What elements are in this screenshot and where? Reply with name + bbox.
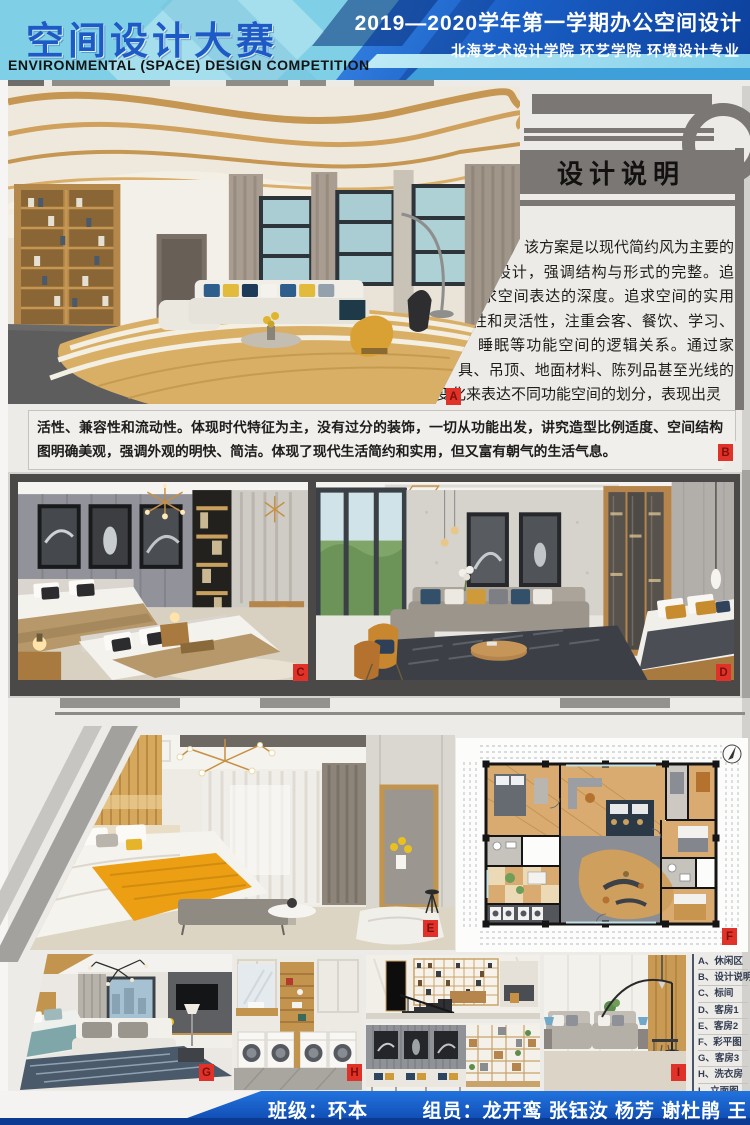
design-note-title-box: 设计说明: [506, 150, 736, 194]
deco-bar: [524, 136, 714, 141]
term-line: 2019—2020学年第一学期办公空间设计: [355, 7, 742, 37]
legend-item: G、客房3: [698, 1051, 748, 1067]
legend-item: D、客房1: [698, 1003, 748, 1019]
deco-tab: [60, 698, 180, 708]
elevation-bottom: [366, 1023, 540, 1091]
legend-item: E、客房2: [698, 1019, 748, 1035]
legend-item: B、设计说明: [698, 970, 748, 986]
label-b: B: [718, 444, 733, 461]
class-label: 班级：环本1719: [268, 1096, 398, 1125]
legend-item: H、洗衣房: [698, 1067, 748, 1083]
deco-tab: [260, 698, 330, 708]
deco-right-edge: [742, 470, 750, 698]
deco-bar: [506, 200, 744, 206]
poster-footer: 班级：环本1719 组员：龙开鸾 张钰汝 杨芳 谢杜鹃 王雨欣: [0, 1091, 750, 1125]
label-a: A: [446, 388, 461, 405]
photo-lounge-a: [8, 86, 520, 404]
deco-stripe: [406, 68, 750, 80]
laundry-graphic: [234, 956, 362, 1090]
label-e: E: [423, 920, 438, 937]
deco-bar: [532, 94, 712, 114]
deco-tab: [560, 698, 670, 708]
elevation-top: [366, 955, 540, 1019]
photo-guestroom1-d: [316, 482, 734, 680]
label-g: G: [199, 1064, 214, 1081]
poster-title: 空间设计大赛: [26, 10, 278, 65]
design-note-body-2-panel: 活性、兼容性和流动性。体现时代特征为主，没有过分的装饰，一切从功能出发，讲究造型…: [28, 410, 736, 470]
design-note-body-2: 活性、兼容性和流动性。体现时代特征为主，没有过分的装饰，一切从功能出发，讲究造型…: [37, 420, 723, 459]
design-note-title: 设计说明: [557, 154, 685, 191]
floor-plan-f: [456, 738, 748, 952]
floor-plan-graphic: [456, 738, 748, 952]
legend-item: A、休闲区: [698, 954, 748, 970]
elevation-bottom-graphic: [366, 1023, 540, 1091]
label-f: F: [722, 928, 737, 945]
credits-line: 班级：环本1719 组员：龙开鸾 张钰汝 杨芳 谢杜鹃 王雨欣: [268, 1096, 748, 1125]
school-line: 北海艺术设计学院 环艺学院 环境设计专业: [451, 40, 740, 61]
poster-header: 空间设计大赛 ENVIRONMENTAL (SPACE) DESIGN COMP…: [0, 0, 750, 80]
members-label: 组员：龙开鸾 张钰汝 杨芳 谢杜鹃 王雨欣: [422, 1096, 748, 1125]
elevation-i-graphic: [544, 955, 686, 1091]
elevation-top-graphic: [366, 955, 540, 1019]
legend-item: C、标间: [698, 986, 748, 1002]
legend-item: F、彩平图: [698, 1035, 748, 1051]
label-c: C: [293, 664, 308, 681]
deco-bar: [524, 128, 714, 133]
photo-standard-room-c: [18, 482, 308, 680]
label-h: H: [347, 1064, 362, 1081]
label-d: D: [716, 664, 731, 681]
legend: A、休闲区 B、设计说明 C、标间 D、客房1 E、客房2 F、彩平图 G、客房…: [692, 954, 748, 1092]
deco-rule: [55, 712, 745, 715]
photo-elevation-i: [544, 955, 686, 1091]
poster-subtitle-en: ENVIRONMENTAL (SPACE) DESIGN COMPETITION: [8, 58, 370, 73]
deco-bar: [735, 148, 744, 410]
standard-room-graphic: [18, 482, 308, 680]
guestroom1-graphic: [316, 482, 734, 680]
competition-poster: 空间设计大赛 ENVIRONMENTAL (SPACE) DESIGN COMP…: [0, 0, 750, 1125]
lounge-graphic: [8, 86, 520, 404]
photo-laundry-h: [234, 956, 362, 1090]
label-i: I: [671, 1064, 686, 1081]
